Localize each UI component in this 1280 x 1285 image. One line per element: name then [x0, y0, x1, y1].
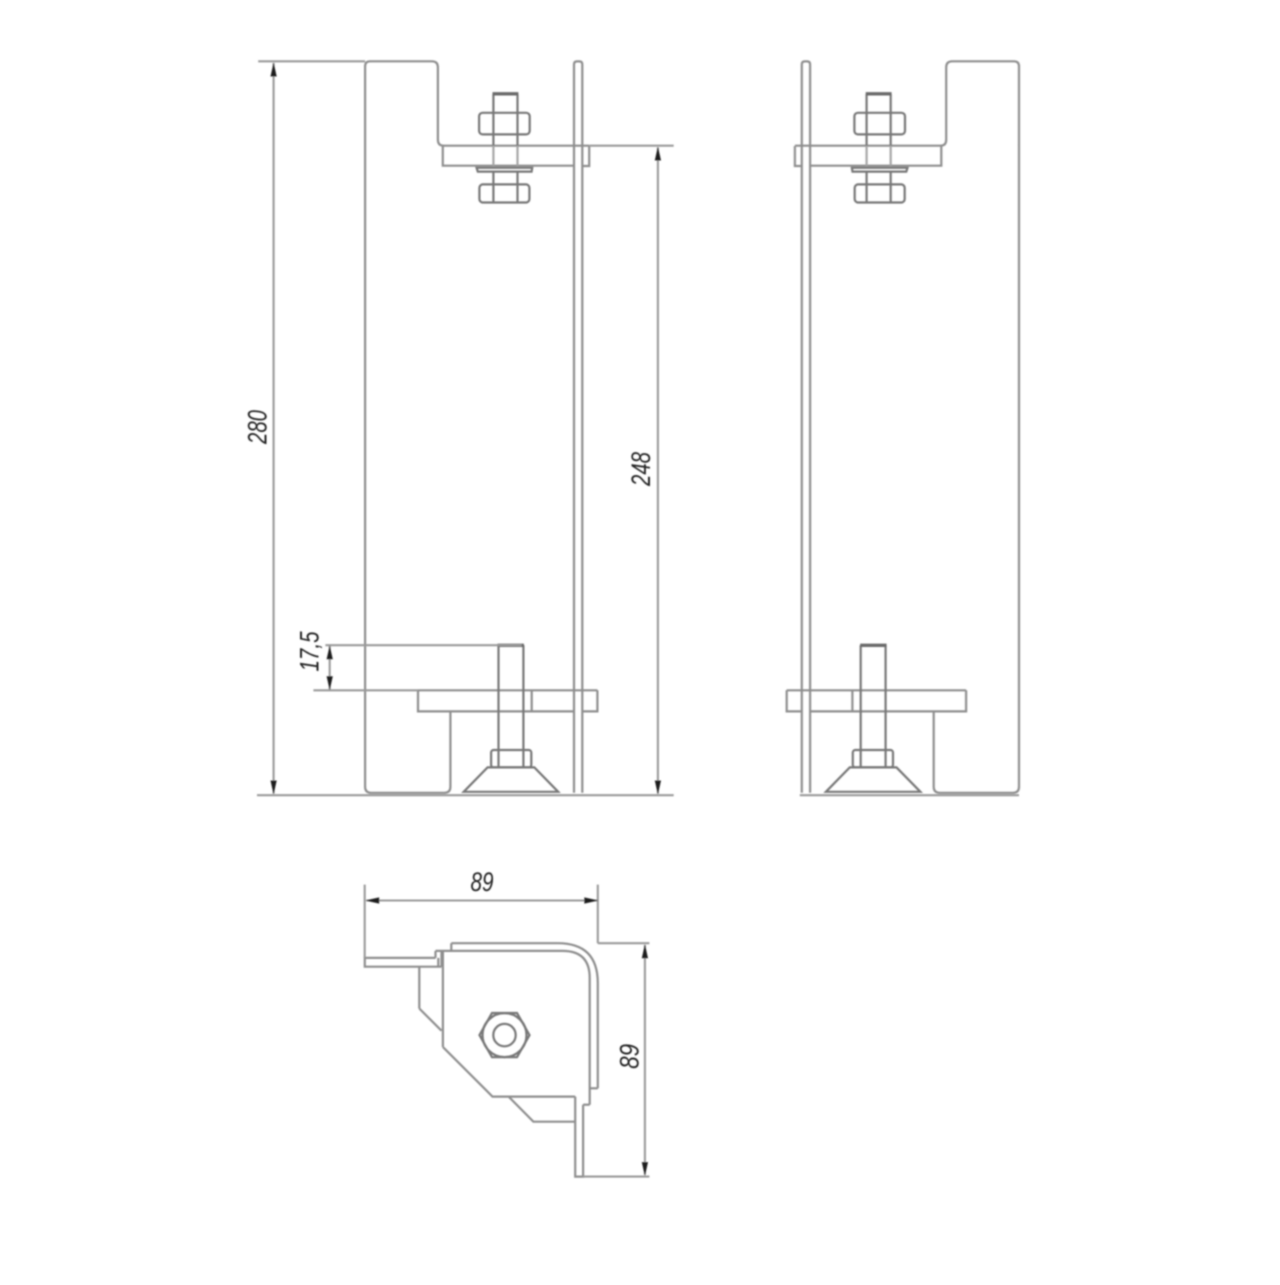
svg-text:280: 280 — [242, 410, 272, 445]
svg-text:89: 89 — [614, 1044, 644, 1069]
svg-text:248: 248 — [626, 452, 656, 487]
svg-text:89: 89 — [471, 867, 494, 897]
svg-text:17,5: 17,5 — [294, 631, 324, 672]
